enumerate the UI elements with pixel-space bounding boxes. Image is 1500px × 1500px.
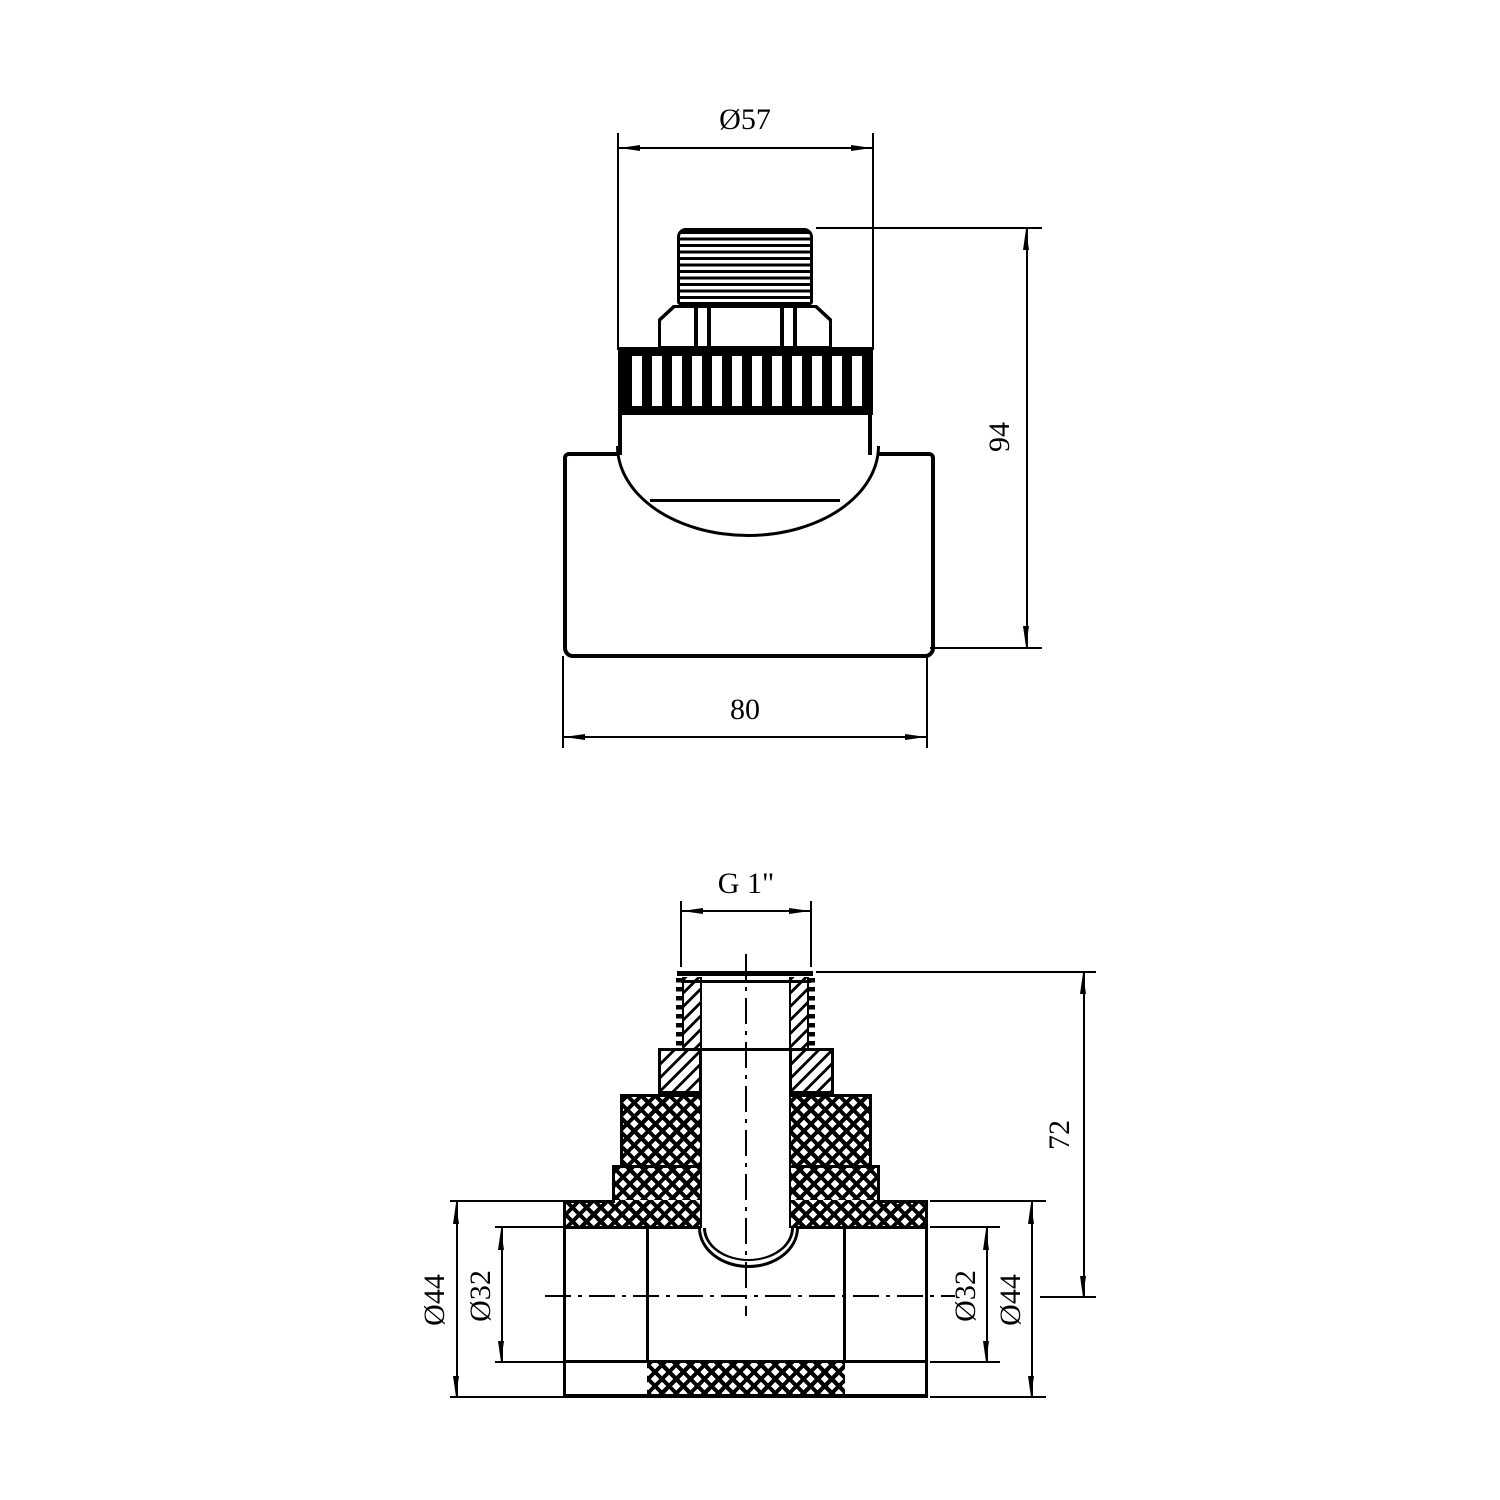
extension-line [495, 1226, 563, 1228]
dim-label-thread-g1: G 1" [666, 864, 826, 904]
dim-arrow [498, 1229, 504, 1250]
extension-line [872, 133, 874, 350]
fv-hex-facet [707, 308, 711, 347]
dim-arrow [1023, 229, 1029, 250]
dim-label-height-94: 94 [970, 407, 1030, 467]
dimension-line [563, 736, 927, 738]
sv-thread-teeth [808, 978, 815, 1048]
sv-outline [876, 1200, 928, 1203]
extension-line [450, 1200, 563, 1202]
extension-line [816, 971, 1096, 973]
extension-line [617, 133, 619, 350]
dim-arrow [1080, 973, 1086, 994]
dim-label-diameter-57: Ø57 [645, 100, 845, 140]
dim-arrow [453, 1203, 459, 1224]
extension-line [930, 1361, 1000, 1363]
dim-arrow [1023, 626, 1029, 647]
extension-line [926, 656, 928, 748]
fv-hex-facet [694, 308, 698, 347]
extension-line [1040, 1296, 1096, 1298]
sv-body-outline [563, 1394, 928, 1398]
dim-arrow [983, 1229, 989, 1250]
dim-arrow [564, 734, 585, 740]
drawing-canvas: Ø57 94 80 [0, 0, 1500, 1500]
dim-arrow [789, 908, 810, 914]
dim-arrow [851, 145, 872, 151]
dim-arrow [498, 1341, 504, 1362]
dim-label-height-72: 72 [1030, 1105, 1090, 1165]
extension-line [816, 227, 1042, 229]
sv-bottom-band [647, 1363, 845, 1395]
dim-arrow [453, 1376, 459, 1397]
extension-line [930, 1200, 1046, 1202]
dim-arrow [619, 145, 640, 151]
fv-hex-facet [780, 308, 784, 347]
dim-arrow [1028, 1203, 1034, 1224]
fv-male-thread [677, 228, 813, 305]
dim-arrow [682, 908, 703, 914]
dimension-line [618, 147, 873, 149]
sv-thread-wall [682, 977, 702, 1050]
extension-line [450, 1396, 563, 1398]
fv-hex-facet [793, 308, 797, 347]
dim-arrow [905, 734, 926, 740]
fv-knurled-collar [618, 347, 873, 415]
fv-hex-nut-face [658, 305, 832, 349]
sv-hex-wall [658, 1048, 702, 1094]
sv-body-outline [925, 1200, 928, 1398]
sv-hex-wall [789, 1048, 834, 1094]
dim-label-width-80: 80 [645, 690, 845, 730]
sv-centerline-vertical [745, 954, 747, 1316]
dim-label-right-outer-44: Ø44 [981, 1270, 1041, 1330]
sv-outline [647, 1360, 845, 1363]
extension-line [495, 1361, 563, 1363]
dim-arrow [1080, 1276, 1086, 1297]
dim-label-left-inner-32: Ø32 [451, 1266, 511, 1326]
extension-line [930, 1226, 1000, 1228]
sv-thread-wall [789, 977, 809, 1050]
sv-body-outline [563, 1200, 566, 1398]
dim-arrow [983, 1341, 989, 1362]
fv-bell-side [618, 411, 622, 455]
sv-centerline-horizontal [545, 1295, 955, 1297]
dim-arrow [1028, 1376, 1034, 1397]
sv-outline [563, 1200, 615, 1203]
sv-outline [789, 1226, 928, 1229]
fv-bell-side [868, 411, 872, 455]
fv-hex-nut [658, 305, 832, 349]
sv-outline [563, 1226, 702, 1229]
fv-saddle-chord [650, 499, 840, 502]
